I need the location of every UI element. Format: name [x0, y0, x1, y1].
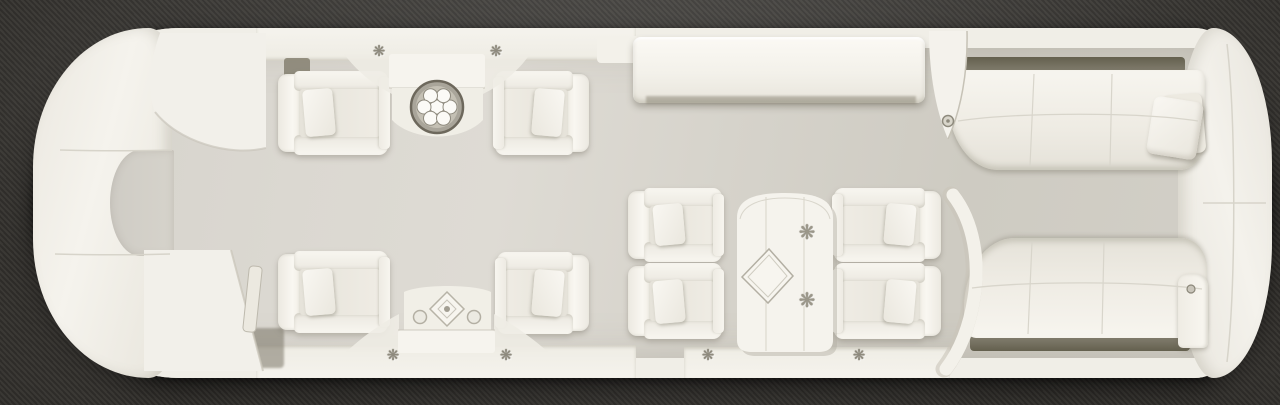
club-chair-fwd-bottom-left — [278, 251, 390, 333]
chair-armrest — [644, 263, 722, 283]
flower-ornament: ❋ — [380, 348, 406, 363]
entry-floor — [110, 150, 174, 256]
chair-footrim — [832, 194, 843, 256]
conference-chair-left-2 — [628, 263, 724, 339]
chair-footrim — [493, 77, 504, 149]
cabin-floorplan: ❋ ❋ ❋ ❋ ❋ ❋ ❋ ❋ — [0, 0, 1280, 405]
conference-chair-left-1 — [628, 188, 724, 262]
divan-armrest — [1178, 274, 1208, 348]
chair-armrest — [497, 252, 573, 272]
chair-armrest — [495, 135, 573, 155]
chair-pillow — [883, 278, 917, 323]
conference-chair-right-1 — [832, 188, 941, 262]
chair-pillow — [302, 268, 336, 316]
credenza-shadow — [646, 96, 916, 104]
credenza-cabinet — [633, 37, 925, 103]
club-chair-fwd-top-left — [278, 71, 390, 155]
club-chair-fwd-top-right — [493, 71, 589, 155]
chair-pillow — [531, 269, 565, 317]
divan-bottom — [964, 238, 1207, 338]
forward-bottom-sideledge — [256, 345, 636, 378]
credenza-step — [597, 36, 637, 63]
chair-armrest — [495, 71, 573, 91]
chair-pillow — [883, 203, 916, 247]
flower-ornament: ❋ — [483, 44, 509, 59]
chair-armrest — [497, 314, 573, 334]
chair-footrim — [495, 258, 506, 328]
throw-pillow-front — [1146, 95, 1204, 160]
club-chair-fwd-bottom-right — [495, 252, 589, 334]
flower-ornament: ❋ — [493, 348, 519, 363]
chair-pillow — [652, 278, 686, 323]
chair-armrest — [294, 135, 388, 155]
chair-pillow — [302, 88, 336, 137]
bottom-divan-back-gap — [970, 336, 1190, 351]
conference-bottom-ledge — [684, 347, 950, 378]
table-flower-ornament: ❋ — [792, 222, 822, 242]
forward-top-sideledge — [256, 28, 636, 61]
chair-pillow — [531, 88, 565, 137]
chair-armrest — [294, 71, 388, 91]
chair-armrest — [644, 242, 722, 262]
flower-ornament: ❋ — [366, 44, 392, 59]
table-flower-ornament: ❋ — [792, 290, 822, 310]
flower-ornament: ❋ — [695, 348, 721, 363]
chair-footrim — [379, 77, 390, 149]
wardrobe-shadow — [240, 328, 284, 368]
chair-pillow — [652, 203, 685, 247]
conference-chair-right-2 — [832, 263, 941, 339]
flower-ornament: ❋ — [846, 348, 872, 363]
chair-armrest — [294, 251, 388, 271]
chair-footrim — [713, 194, 724, 256]
chair-footrim — [832, 269, 843, 333]
chair-footrim — [379, 257, 390, 327]
chair-armrest — [294, 313, 388, 333]
chair-footrim — [713, 269, 724, 333]
